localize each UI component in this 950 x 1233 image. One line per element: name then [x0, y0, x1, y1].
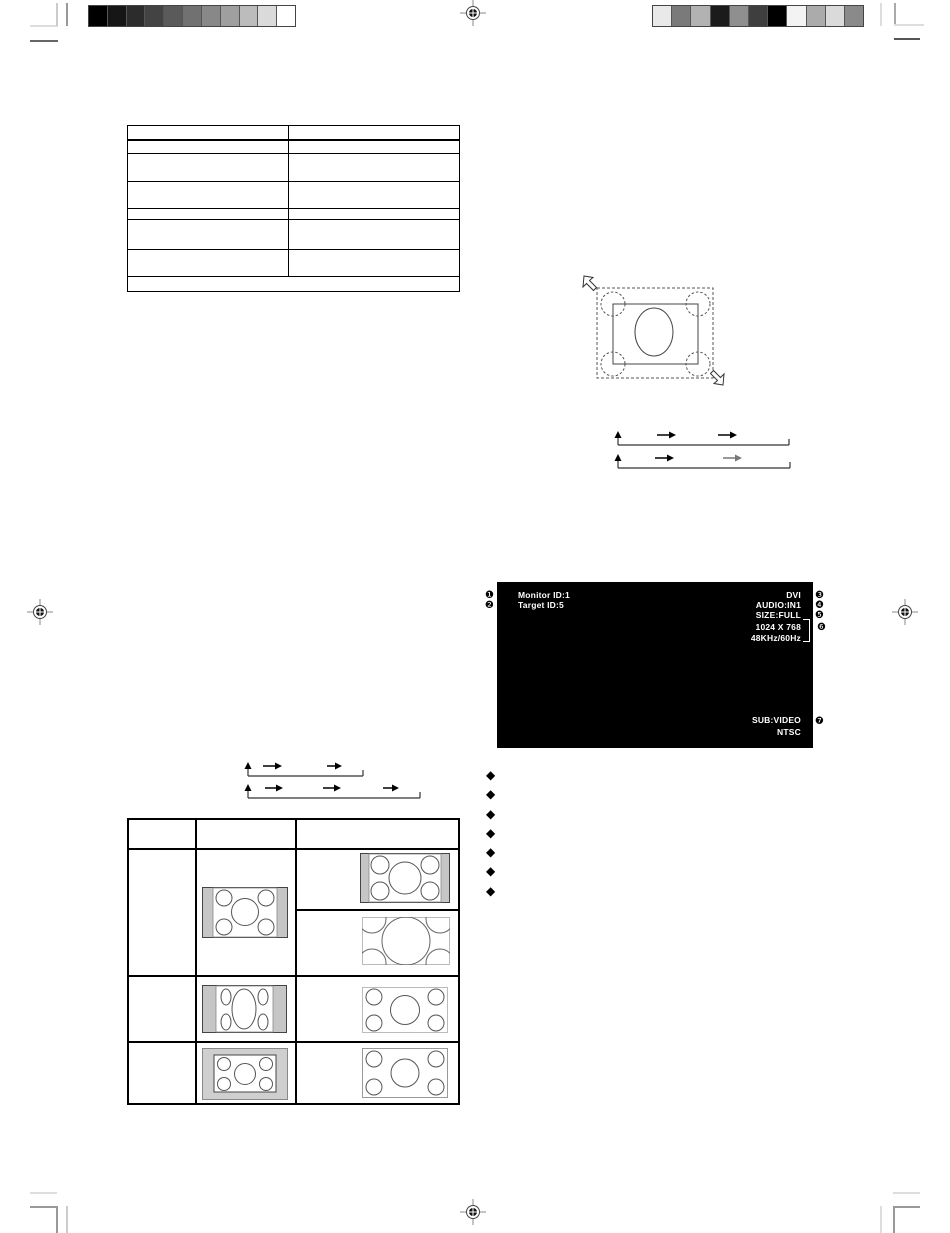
crop-mark	[893, 1192, 920, 1194]
spec-table-line	[128, 219, 459, 220]
spec-table	[127, 125, 460, 292]
crop-mark	[30, 1192, 57, 1194]
diamond-bullet-icon: ◆	[486, 805, 495, 824]
diamond-bullet-icon: ◆	[486, 824, 495, 843]
expand-arrow-icon	[583, 276, 597, 291]
screen-diagram-normal	[360, 853, 450, 903]
crop-mark	[56, 3, 58, 26]
crop-mark	[30, 40, 58, 42]
crop-mark	[894, 3, 896, 26]
spec-table-line	[128, 208, 459, 209]
diamond-bullet-icon: ◆	[486, 843, 495, 862]
diamond-bullet-icon: ◆	[486, 882, 495, 901]
size-table-line-partial	[296, 909, 458, 911]
registration-mark-top-center	[460, 0, 486, 26]
size-table-divider	[295, 820, 297, 1103]
osd-target-id: Target ID:5	[518, 600, 564, 610]
grayscale-calibration-bar-left	[88, 5, 296, 27]
diamond-bullet-icon: ◆	[486, 766, 495, 785]
osd-audio: AUDIO:IN1	[756, 600, 801, 610]
osd-input: DVI	[786, 590, 801, 600]
screen-diagram-full	[362, 1048, 448, 1098]
callout-2: ❷	[485, 601, 494, 611]
callout-7: ❼	[815, 717, 824, 727]
crop-mark	[880, 3, 882, 26]
size-table-line	[129, 975, 458, 977]
crop-mark	[56, 1206, 58, 1233]
size-table-line	[129, 1041, 458, 1043]
overscan-diagram	[580, 273, 730, 388]
crop-mark	[30, 25, 58, 27]
diamond-bullet-icon: ◆	[486, 862, 495, 881]
osd-group-bracket	[803, 619, 810, 642]
screen-diagram-zoom	[362, 917, 450, 965]
screen-diagram-pillarbox	[202, 887, 288, 938]
crop-mark	[880, 1206, 882, 1233]
osd-sub-input: SUB:VIDEO	[752, 715, 801, 725]
diamond-bullet-icon: ◆	[486, 785, 495, 804]
size-table-divider	[195, 820, 197, 1103]
osd-resolution: 1024 X 768	[756, 622, 801, 632]
cycle-diagram-right-2	[612, 451, 797, 477]
manual-page: Monitor ID:1 Target ID:5 DVI AUDIO:IN1 S…	[0, 0, 950, 1233]
spec-table-line	[128, 153, 459, 154]
cycle-diagram-left-2	[242, 781, 427, 807]
crop-mark	[30, 1206, 57, 1208]
osd-monitor-id: Monitor ID:1	[518, 590, 570, 600]
screen-diagram-letterbox	[202, 1048, 288, 1100]
osd-sub-format: NTSC	[777, 727, 801, 737]
callout-5: ❺	[815, 611, 824, 621]
grayscale-calibration-bar-right	[652, 5, 864, 27]
size-table-line	[129, 848, 458, 850]
registration-mark-bottom-center	[460, 1199, 486, 1225]
registration-mark-right	[892, 599, 918, 625]
spec-table-line	[128, 276, 459, 277]
crop-mark	[894, 24, 924, 26]
callout-6: ❻	[817, 623, 826, 633]
bullet-list: ◆ ◆ ◆ ◆ ◆ ◆ ◆	[486, 766, 495, 901]
crop-mark	[893, 1206, 895, 1233]
osd-size: SIZE:FULL	[756, 610, 801, 620]
spec-table-line	[128, 139, 459, 141]
crop-mark	[894, 38, 920, 40]
screen-diagram-full	[362, 987, 448, 1033]
osd-information-screen: Monitor ID:1 Target ID:5 DVI AUDIO:IN1 S…	[497, 582, 813, 748]
spec-table-divider	[288, 126, 289, 276]
crop-mark	[66, 3, 68, 26]
spec-table-line	[128, 249, 459, 250]
crop-mark	[66, 1206, 68, 1233]
crop-mark	[893, 1206, 920, 1208]
screen-diagram-squeeze	[202, 985, 287, 1033]
registration-mark-left	[27, 599, 53, 625]
osd-frequency: 48KHz/60Hz	[751, 633, 801, 643]
spec-table-line	[128, 181, 459, 182]
